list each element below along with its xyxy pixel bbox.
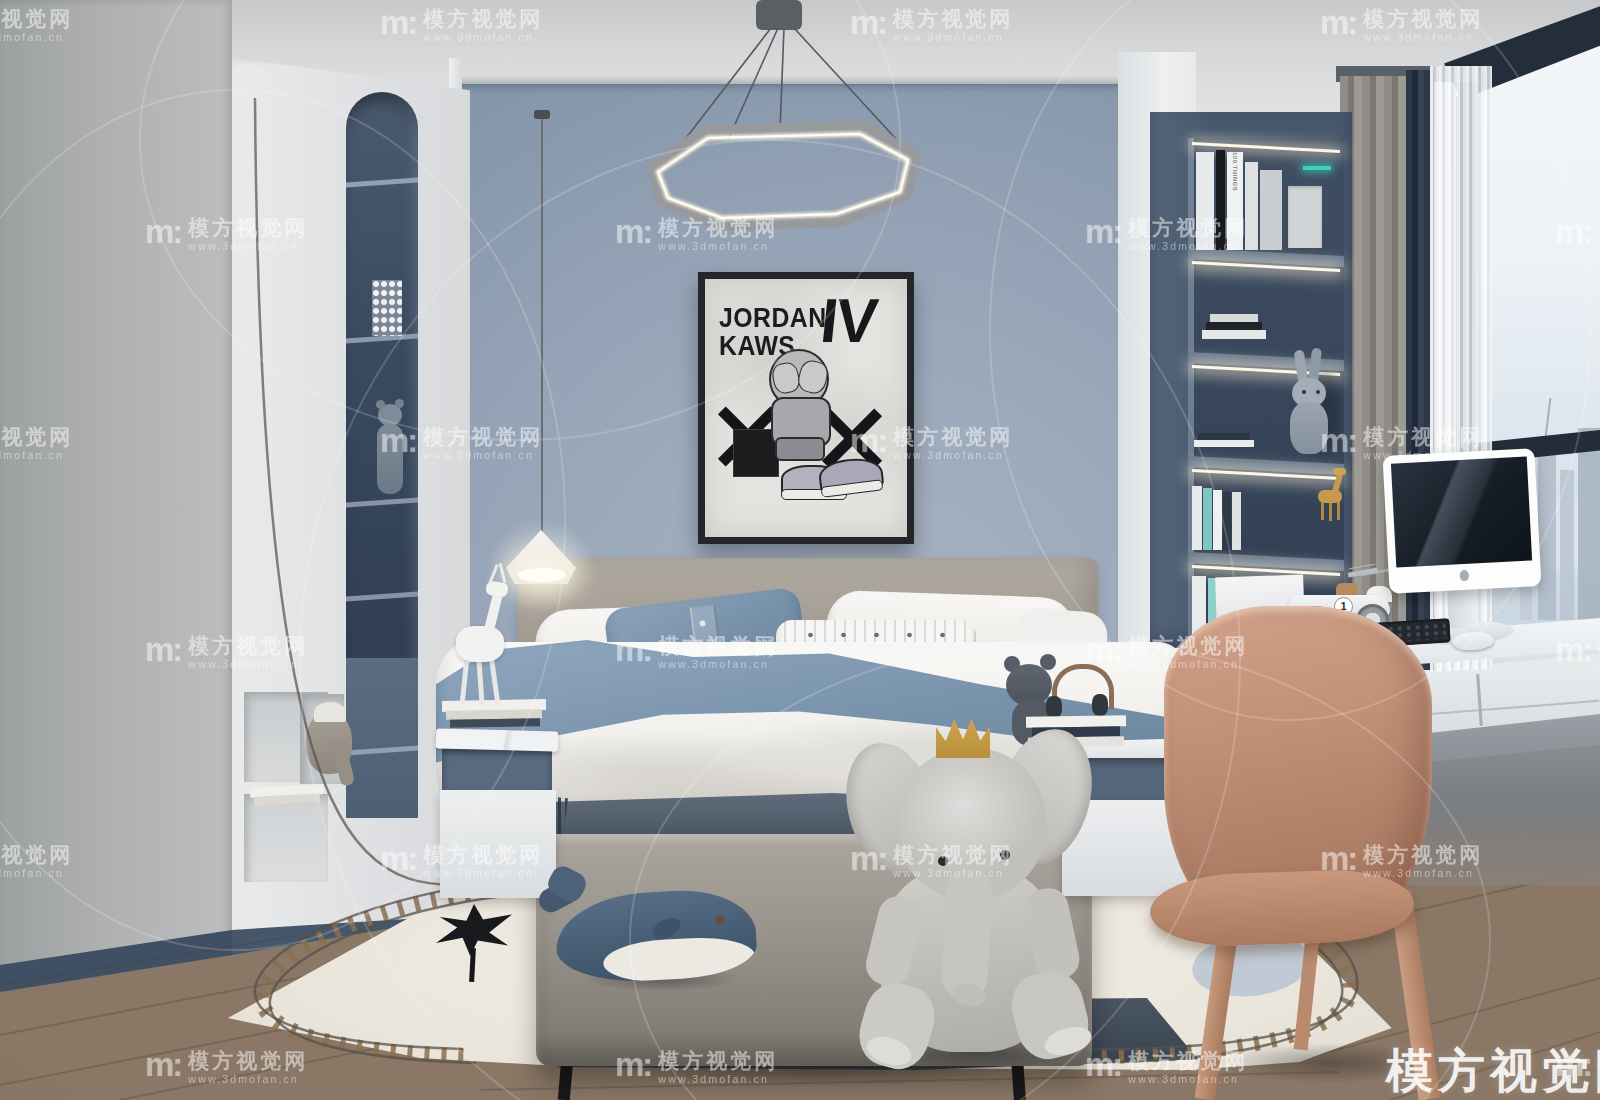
watermark-url: www.3dmofan.cn: [1363, 30, 1483, 44]
book-spine: [1203, 488, 1212, 550]
imac-reflection: [1391, 457, 1532, 568]
watermark-title: 模方视觉网: [1363, 8, 1483, 30]
book-spine-label: 100 THINGS: [1232, 152, 1238, 191]
nightstand-left-books: [450, 718, 540, 728]
ring-canopy: [756, 0, 802, 30]
pendant-cord: [541, 114, 543, 538]
watermark-logo: m:: [1320, 8, 1356, 38]
elephant-trunk: [941, 867, 994, 1001]
pillow-striped-buttons: [794, 630, 958, 640]
book-spine: [1245, 162, 1258, 250]
book-spine: [1213, 490, 1222, 550]
lying-books: [1194, 440, 1254, 447]
gold-deer-leg: [1337, 502, 1340, 520]
octagon-pendant-light: [608, 0, 968, 260]
rabbit-eye: [1302, 390, 1306, 394]
nightstand-left-gap: [442, 748, 552, 792]
niche-bear-figure-body: [377, 424, 403, 494]
imac-screen: [1382, 448, 1541, 594]
left-wardrobe: [0, 0, 232, 996]
lying-books: [1210, 314, 1258, 322]
cubby-elephant-toy-cap: [314, 702, 346, 722]
pendant-canopy: [534, 110, 550, 119]
lying-books: [1198, 433, 1250, 440]
imac-apple-logo: [1460, 570, 1470, 581]
niche-lower-shelves: [346, 658, 418, 818]
city-building: [1538, 438, 1556, 620]
city-building: [1578, 428, 1600, 620]
poster-figure-shorts: [775, 437, 825, 461]
bedroom-render: 100 THINGS: [0, 0, 1600, 1100]
book-spine: 100 THINGS: [1227, 152, 1243, 250]
shelf-led-accent: [1303, 166, 1331, 170]
headphones-cup: [1092, 694, 1108, 716]
book-spine: [1216, 150, 1225, 250]
lying-books: [1202, 330, 1266, 339]
watermark: m:模方视觉网www.3dmofan.cn: [380, 8, 543, 44]
shelf-box: [1288, 186, 1322, 248]
city-building: [1560, 470, 1574, 620]
poster-frame: IV JORDAN KAWS: [698, 272, 914, 544]
elephant-eye: [938, 856, 948, 866]
pendant-bulb-glow: [518, 568, 566, 582]
rabbit-eye: [1316, 390, 1320, 394]
watermark-title: 模方视觉网: [423, 8, 543, 30]
gold-deer-leg: [1321, 502, 1324, 520]
book-spine: [1192, 486, 1202, 550]
book-spine: [1260, 170, 1282, 250]
gold-deer-head: [1333, 468, 1346, 475]
imac-display: [1391, 457, 1532, 568]
whale-eye: [716, 916, 724, 924]
nightstand-left-drawer: [440, 790, 556, 898]
book-spine: [1196, 152, 1214, 250]
watermark-logo: m:: [380, 8, 416, 38]
elephant-eye: [1000, 850, 1010, 860]
headphones-cup: [1046, 696, 1062, 718]
watermark-url: www.3dmofan.cn: [423, 30, 543, 44]
toy-car-seat: [1336, 583, 1358, 595]
watermark: m:模方视觉网www.3dmofan.cn: [1320, 8, 1483, 44]
book-spine: [1232, 492, 1241, 550]
imac-stand: [1447, 587, 1478, 628]
cubby-opening: [244, 794, 328, 882]
nightstand-left-top: [436, 728, 558, 751]
niche-block-toy: [372, 280, 402, 336]
niche-bear-figure-ear: [395, 399, 404, 408]
gold-deer-leg: [1329, 503, 1332, 521]
poster-title-line1: JORDAN: [719, 303, 827, 334]
niche-bear-figure-ear: [376, 400, 385, 409]
rabbit-body: [1290, 402, 1328, 454]
niche-shelf: [346, 92, 418, 658]
lying-books: [1206, 322, 1262, 330]
book-spine: [1223, 492, 1231, 550]
